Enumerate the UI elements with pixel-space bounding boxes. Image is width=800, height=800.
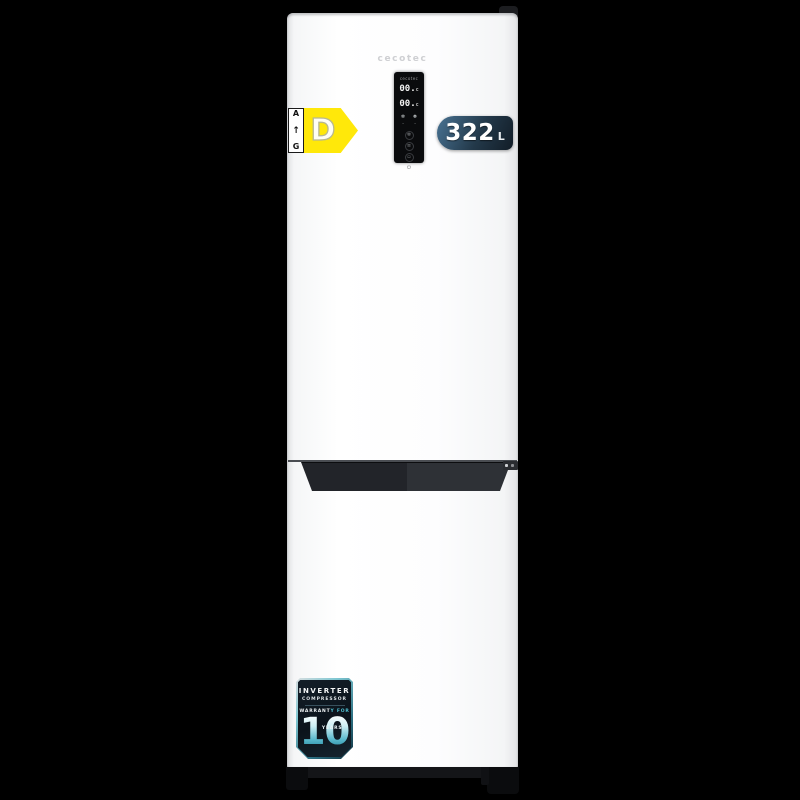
indicator-dot-icon: · [398, 121, 408, 127]
capacity-badge: 322 L [437, 116, 513, 150]
left-foot [286, 767, 308, 790]
recessed-handle [287, 462, 518, 491]
fridge-body: cecotec cecotec 00.c 00.c ❄ ❅ · · ❄ ≡ ▫ … [287, 13, 518, 768]
energy-rating-arrow: D [304, 108, 358, 153]
celsius-mark: c [416, 87, 419, 93]
indicator-dot-icon: · [410, 121, 420, 127]
kick-plate [295, 767, 509, 778]
mid-hinge-detail [503, 461, 518, 470]
energy-scale-top: A [293, 110, 299, 118]
panel-touch-buttons: ❄ ≡ ▫ [405, 131, 414, 162]
inverter-label: INVERTER [299, 687, 351, 695]
capacity-unit: L [498, 130, 505, 143]
energy-scale-column: A ↑ G [288, 108, 304, 153]
panel-brand-label: cecotec [400, 76, 418, 81]
fridge-temp-display: 00.c [399, 84, 418, 96]
mode-indicator-grid: ❄ ❅ · · [398, 114, 420, 127]
super-freeze-icon: ❅ [410, 114, 420, 120]
warranty-badge: INVERTER COMPRESSOR WARRANTY FOR 10 YEAR… [296, 678, 353, 759]
energy-label: A ↑ G D [288, 108, 358, 153]
snowflake-icon: ❄ [398, 114, 408, 120]
energy-rating-letter: D [311, 116, 336, 146]
right-wheel-assembly [487, 767, 519, 794]
control-panel: cecotec 00.c 00.c ❄ ❅ · · ❄ ≡ ▫ ⏻ [394, 72, 424, 163]
product-photo-stage: cecotec cecotec 00.c 00.c ❄ ❅ · · ❄ ≡ ▫ … [0, 0, 800, 800]
warranty-years-value: 10 [300, 712, 350, 752]
celsius-mark: c [416, 102, 419, 108]
energy-scale-bottom: G [293, 143, 300, 151]
badge-divider [305, 705, 345, 706]
mode-button: ▫ [405, 153, 414, 162]
door-gap-line [288, 460, 517, 462]
capacity-value: 322 [445, 120, 495, 146]
compressor-label: COMPRESSOR [302, 697, 347, 702]
arrow-up-icon: ↑ [292, 127, 300, 135]
fridge-zone-button: ❄ [405, 131, 414, 140]
freezer-temp-display: 00.c [399, 99, 418, 111]
brand-logo: cecotec [287, 54, 518, 64]
freezer-zone-button: ≡ [405, 142, 414, 151]
warranty-badge-inner: INVERTER COMPRESSOR WARRANTY FOR 10 YEAR… [298, 680, 352, 758]
power-icon: ⏻ [407, 165, 411, 171]
warranty-years-label: YEARS [322, 726, 343, 731]
